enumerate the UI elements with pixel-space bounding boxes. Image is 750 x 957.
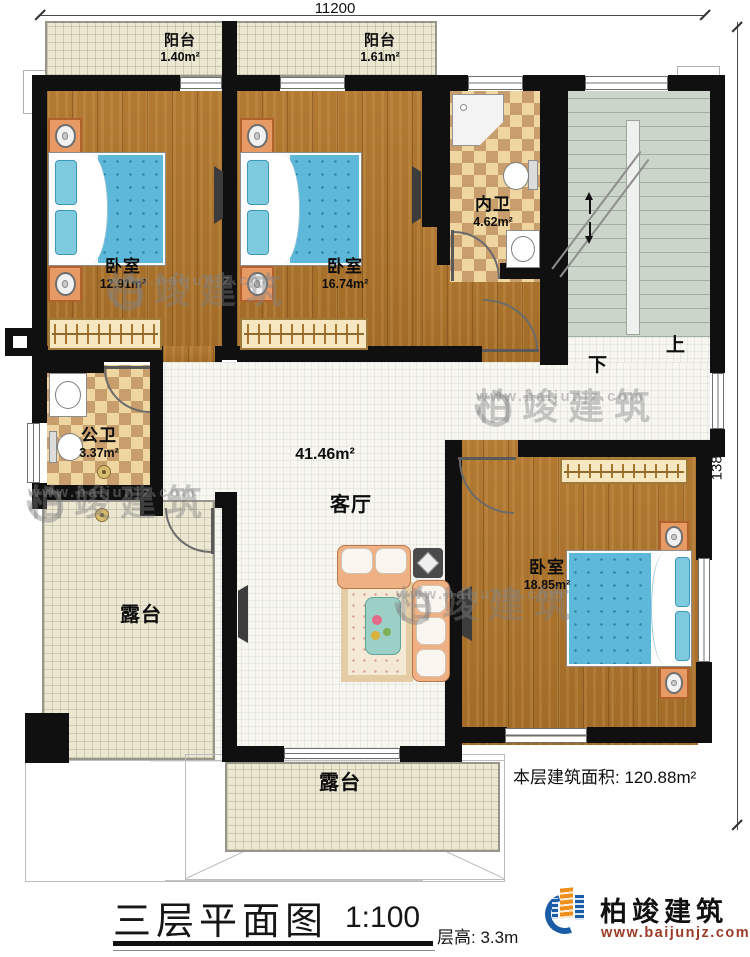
nightstand (240, 266, 274, 302)
sofa-cushion (375, 548, 407, 574)
wall (222, 75, 280, 91)
flowers-icon (383, 628, 391, 636)
sofa-cushion (341, 548, 373, 574)
room-area: 16.74m² (322, 277, 369, 292)
room-name: 卧室 (524, 558, 571, 578)
brand-name: 柏竣建筑 (600, 890, 728, 929)
logo-building-icon (552, 898, 558, 919)
coffee-table (365, 597, 401, 655)
room-name: 内卫 (473, 195, 513, 215)
brand-website: www.baijunjz.com (601, 925, 750, 941)
plan-title: 三层平面图 (113, 890, 328, 945)
room-name: 露台 (319, 772, 361, 796)
brand-logo-icon (545, 886, 593, 938)
tv (462, 586, 472, 641)
wall (32, 75, 180, 91)
room-area: 1.61m² (360, 50, 400, 65)
wall (222, 21, 237, 75)
floor-drain-icon (95, 508, 109, 522)
wall (222, 508, 237, 762)
logo-building-icon (575, 895, 584, 920)
wardrobe (560, 458, 688, 484)
wall (437, 91, 450, 265)
wall (222, 91, 237, 360)
dimension-line-right (737, 22, 738, 830)
door-threshold (163, 346, 215, 362)
logo-building-icon (560, 887, 573, 918)
room-area: 18.85m² (524, 578, 571, 593)
wardrobe-pole (244, 333, 363, 335)
shower-head-icon (460, 104, 467, 111)
room-name: 阳台 (360, 32, 400, 50)
sofa-cushion (416, 617, 446, 645)
room-label-balcony-left: 阳台 1.40m² (160, 32, 200, 64)
room-name: 阳台 (160, 32, 200, 50)
dimension-height: 13800 (709, 430, 726, 490)
wall (345, 75, 468, 91)
toilet-tank (528, 160, 538, 190)
balcony-door (180, 77, 222, 89)
wall (422, 91, 437, 227)
sofa-cushion (416, 585, 446, 613)
floor-drain-icon (97, 465, 111, 479)
terrace-door (284, 748, 400, 759)
stair-direction-arrow (585, 192, 593, 200)
toilet-tank (49, 431, 57, 463)
room-label-bedroom-left: 卧室 12.91m² (100, 257, 147, 292)
door-leaf (482, 349, 539, 352)
stair-direction-arrow (589, 222, 591, 236)
divider-line (165, 880, 423, 881)
wall (150, 359, 163, 492)
lamp-icon (55, 124, 76, 148)
toilet (503, 162, 529, 190)
sink (55, 381, 81, 409)
wall (696, 662, 712, 743)
floor-plan: 阳台 1.40m² 阳台 1.61m² 卧室 12.91m² 卧室 16.74m… (0, 0, 750, 957)
living-area-label: 41.46m² (295, 446, 355, 465)
room-area: 4.62m² (473, 215, 513, 230)
pillow (55, 160, 77, 205)
window (505, 728, 587, 743)
room-name: 卧室 (100, 257, 147, 277)
pillow (247, 160, 269, 205)
window (468, 76, 523, 90)
bed-sheet (651, 553, 673, 664)
door-leaf (211, 508, 214, 554)
bed-mattress (569, 553, 651, 664)
column (25, 713, 69, 763)
room-label-bedroom-mid: 卧室 16.74m² (322, 257, 369, 292)
nightstand (240, 118, 274, 154)
room-label-balcony-right: 阳台 1.61m² (360, 32, 400, 64)
room-name: 卧室 (322, 257, 369, 277)
title-underline (113, 941, 433, 946)
room-area: 41.46m² (295, 446, 355, 465)
nightstand (659, 521, 689, 553)
stairs-up-label: 上 (666, 330, 685, 357)
room-name: 客厅 (330, 494, 372, 518)
lamp-icon (247, 124, 268, 148)
nightstand (48, 118, 82, 154)
floor-area-note: 本层建筑面积: 120.88m² (513, 763, 696, 788)
wall (587, 727, 710, 743)
nightstand (659, 667, 689, 699)
room-name: 公卫 (79, 426, 119, 446)
balcony-door (280, 77, 345, 89)
pillow (675, 557, 690, 607)
room-label-terrace-bottom: 露台 (319, 772, 361, 796)
nightstand (48, 266, 82, 302)
pillow (675, 611, 690, 661)
lamp-icon (665, 672, 683, 693)
window (27, 423, 40, 483)
lamp-icon (55, 272, 76, 296)
sofa-cushion (416, 649, 446, 677)
floor-height-note: 层高: 3.3m (437, 923, 518, 948)
room-label-bath-ensuite: 内卫 4.62m² (473, 195, 513, 230)
stairs-down-label: 下 (588, 350, 607, 377)
wall (710, 75, 725, 373)
bed-mattress (290, 155, 359, 263)
stair-direction-arrow (585, 236, 593, 244)
sink (511, 236, 535, 262)
room-area: 12.91m² (100, 277, 147, 292)
room-label-bedroom-master: 卧室 18.85m² (524, 558, 571, 593)
flowers-icon (371, 631, 380, 640)
wardrobe-pole (564, 471, 683, 473)
pillow (55, 210, 77, 255)
tv (412, 166, 421, 224)
wall (215, 492, 237, 508)
flowers-icon (372, 615, 382, 625)
room-label-bath-public: 公卫 3.37m² (79, 426, 119, 461)
lamp-icon (665, 526, 683, 547)
wall (222, 746, 284, 762)
wall (540, 75, 568, 365)
wall (215, 346, 222, 362)
room-label-living: 客厅 (330, 494, 372, 518)
room-area: 3.37m² (79, 446, 119, 461)
window (698, 558, 710, 662)
stair-direction-arrow (589, 200, 591, 214)
window (712, 373, 724, 429)
wall (140, 492, 163, 516)
tv (214, 166, 223, 224)
pillow (247, 210, 269, 255)
wardrobe (240, 318, 368, 350)
column (5, 328, 35, 356)
window (585, 76, 668, 90)
room-area: 1.40m² (160, 50, 200, 65)
wardrobe (48, 318, 162, 350)
wall (400, 746, 462, 762)
wardrobe-pole (52, 333, 158, 335)
wall (445, 727, 507, 743)
room-name: 露台 (120, 604, 162, 628)
wall (518, 440, 710, 457)
room-label-terrace-left: 露台 (120, 604, 162, 628)
tv (238, 585, 248, 643)
wall (47, 359, 104, 373)
plan-scale: 1:100 (345, 901, 420, 935)
lamp-icon (247, 272, 268, 296)
terrace-bottom-floor (225, 762, 500, 852)
title-underline-thin (113, 950, 435, 951)
wall (32, 91, 47, 423)
hall-floor (462, 362, 710, 440)
dimension-width: 11200 (285, 0, 385, 17)
